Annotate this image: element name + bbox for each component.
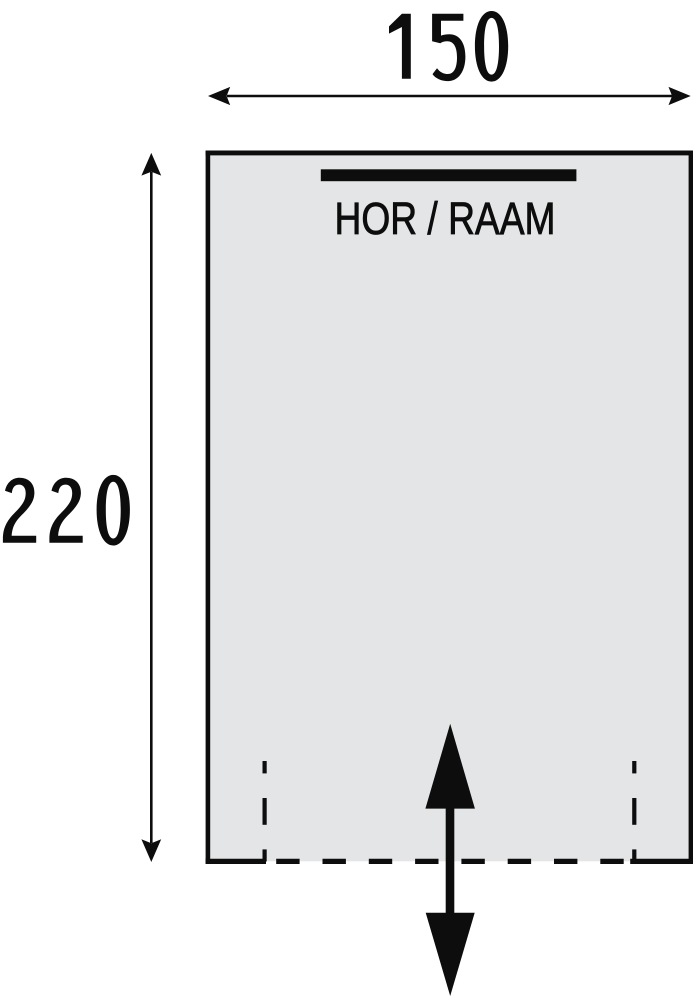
svg-text:HOR / RAAM: HOR / RAAM bbox=[335, 193, 556, 244]
